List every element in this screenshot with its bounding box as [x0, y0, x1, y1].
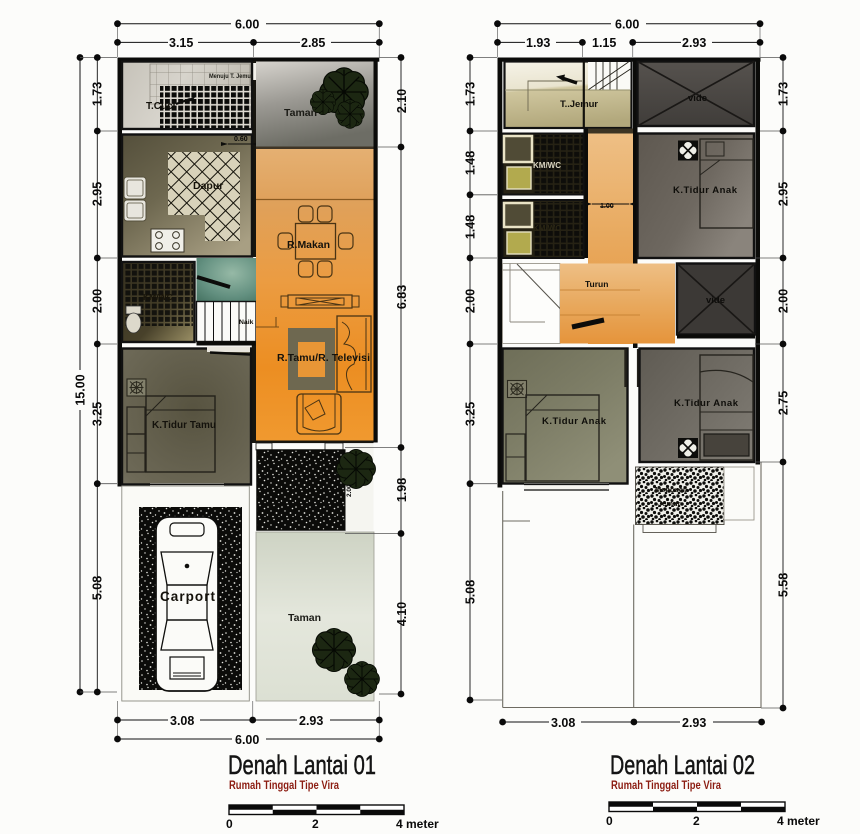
svg-text:4.10: 4.10	[395, 602, 409, 626]
svg-text:1.48: 1.48	[464, 151, 478, 175]
svg-text:2.85: 2.85	[301, 36, 325, 50]
svg-text:2.00: 2.00	[464, 289, 478, 313]
svg-text:KM/WC: KM/WC	[533, 161, 561, 170]
svg-text:3.15: 3.15	[169, 36, 193, 50]
svg-text:1.73: 1.73	[777, 82, 791, 106]
svg-text:2.00: 2.00	[777, 289, 791, 313]
svg-text:2.93: 2.93	[682, 36, 706, 50]
svg-text:Carport: Carport	[160, 589, 216, 604]
svg-text:Menuju T. Jemur: Menuju T. Jemur	[209, 73, 254, 80]
svg-text:Mencuci/: Mencuci/	[655, 485, 688, 494]
svg-text:KM/WC: KM/WC	[143, 292, 173, 302]
svg-text:1.15: 1.15	[592, 36, 616, 50]
svg-text:6.00: 6.00	[235, 733, 259, 747]
svg-text:K.Tidur Tamu: K.Tidur Tamu	[152, 420, 216, 431]
svg-text:2.75: 2.75	[777, 391, 791, 415]
svg-text:0.60: 0.60	[234, 136, 248, 143]
svg-text:Taman: Taman	[288, 612, 321, 624]
svg-text:4 meter: 4 meter	[396, 817, 439, 831]
svg-text:vide: vide	[706, 295, 725, 306]
svg-text:T..Jemur: T..Jemur	[560, 99, 598, 110]
svg-text:6.83: 6.83	[395, 285, 409, 309]
svg-text:2.00: 2.00	[346, 484, 353, 497]
svg-text:2.00: 2.00	[91, 289, 105, 313]
svg-text:3.08: 3.08	[170, 714, 194, 728]
svg-text:Rumah Tinggal Tipe Vira: Rumah Tinggal Tipe Vira	[229, 780, 339, 792]
svg-text:Rumah Tinggal Tipe Vira: Rumah Tinggal Tipe Vira	[611, 780, 721, 792]
svg-text:K.Tidur Anak: K.Tidur Anak	[542, 416, 607, 427]
svg-text:6.00: 6.00	[615, 18, 639, 32]
svg-text:R.Tamu/R. Televisi: R.Tamu/R. Televisi	[277, 352, 370, 364]
svg-text:vide: vide	[688, 93, 707, 104]
svg-text:2.95: 2.95	[777, 182, 791, 206]
svg-text:Dapur: Dapur	[193, 180, 223, 192]
svg-text:3.25: 3.25	[91, 402, 105, 426]
svg-text:Taman: Taman	[284, 107, 317, 119]
svg-text:2.93: 2.93	[682, 716, 706, 730]
svg-text:Jemur: Jemur	[658, 499, 681, 508]
svg-text:2.95: 2.95	[91, 182, 105, 206]
svg-text:1.93: 1.93	[526, 36, 550, 50]
svg-text:5.08: 5.08	[91, 576, 105, 600]
svg-text:Denah Lantai 02: Denah Lantai 02	[610, 750, 755, 780]
svg-text:2.93: 2.93	[299, 714, 323, 728]
svg-text:0: 0	[226, 817, 233, 831]
svg-text:1.98: 1.98	[395, 478, 409, 502]
svg-text:5.08: 5.08	[464, 580, 478, 604]
svg-text:1.73: 1.73	[464, 82, 478, 106]
svg-text:1.48: 1.48	[464, 215, 478, 239]
svg-text:R.Makan: R.Makan	[287, 239, 330, 251]
svg-text:6.00: 6.00	[235, 18, 259, 32]
svg-text:Turun: Turun	[585, 279, 608, 289]
svg-text:0: 0	[606, 814, 613, 828]
svg-text:1.00: 1.00	[600, 203, 614, 210]
svg-text:Naik: Naik	[239, 319, 254, 326]
svg-text:15.00: 15.00	[74, 374, 88, 405]
svg-text:T.Cuci: T.Cuci	[146, 101, 176, 112]
svg-text:2: 2	[312, 817, 319, 831]
svg-text:5.58: 5.58	[777, 573, 791, 597]
svg-text:KM/WC: KM/WC	[533, 224, 561, 233]
svg-text:2.10: 2.10	[395, 89, 409, 113]
svg-text:K.Tidur Anak: K.Tidur Anak	[673, 185, 738, 196]
svg-text:4 meter: 4 meter	[777, 814, 820, 828]
svg-text:2: 2	[693, 814, 700, 828]
svg-text:K.Tidur Anak: K.Tidur Anak	[674, 398, 739, 409]
svg-text:Denah Lantai 01: Denah Lantai 01	[228, 750, 376, 780]
svg-text:1.73: 1.73	[91, 82, 105, 106]
svg-text:3.25: 3.25	[464, 402, 478, 426]
svg-text:3.08: 3.08	[551, 716, 575, 730]
